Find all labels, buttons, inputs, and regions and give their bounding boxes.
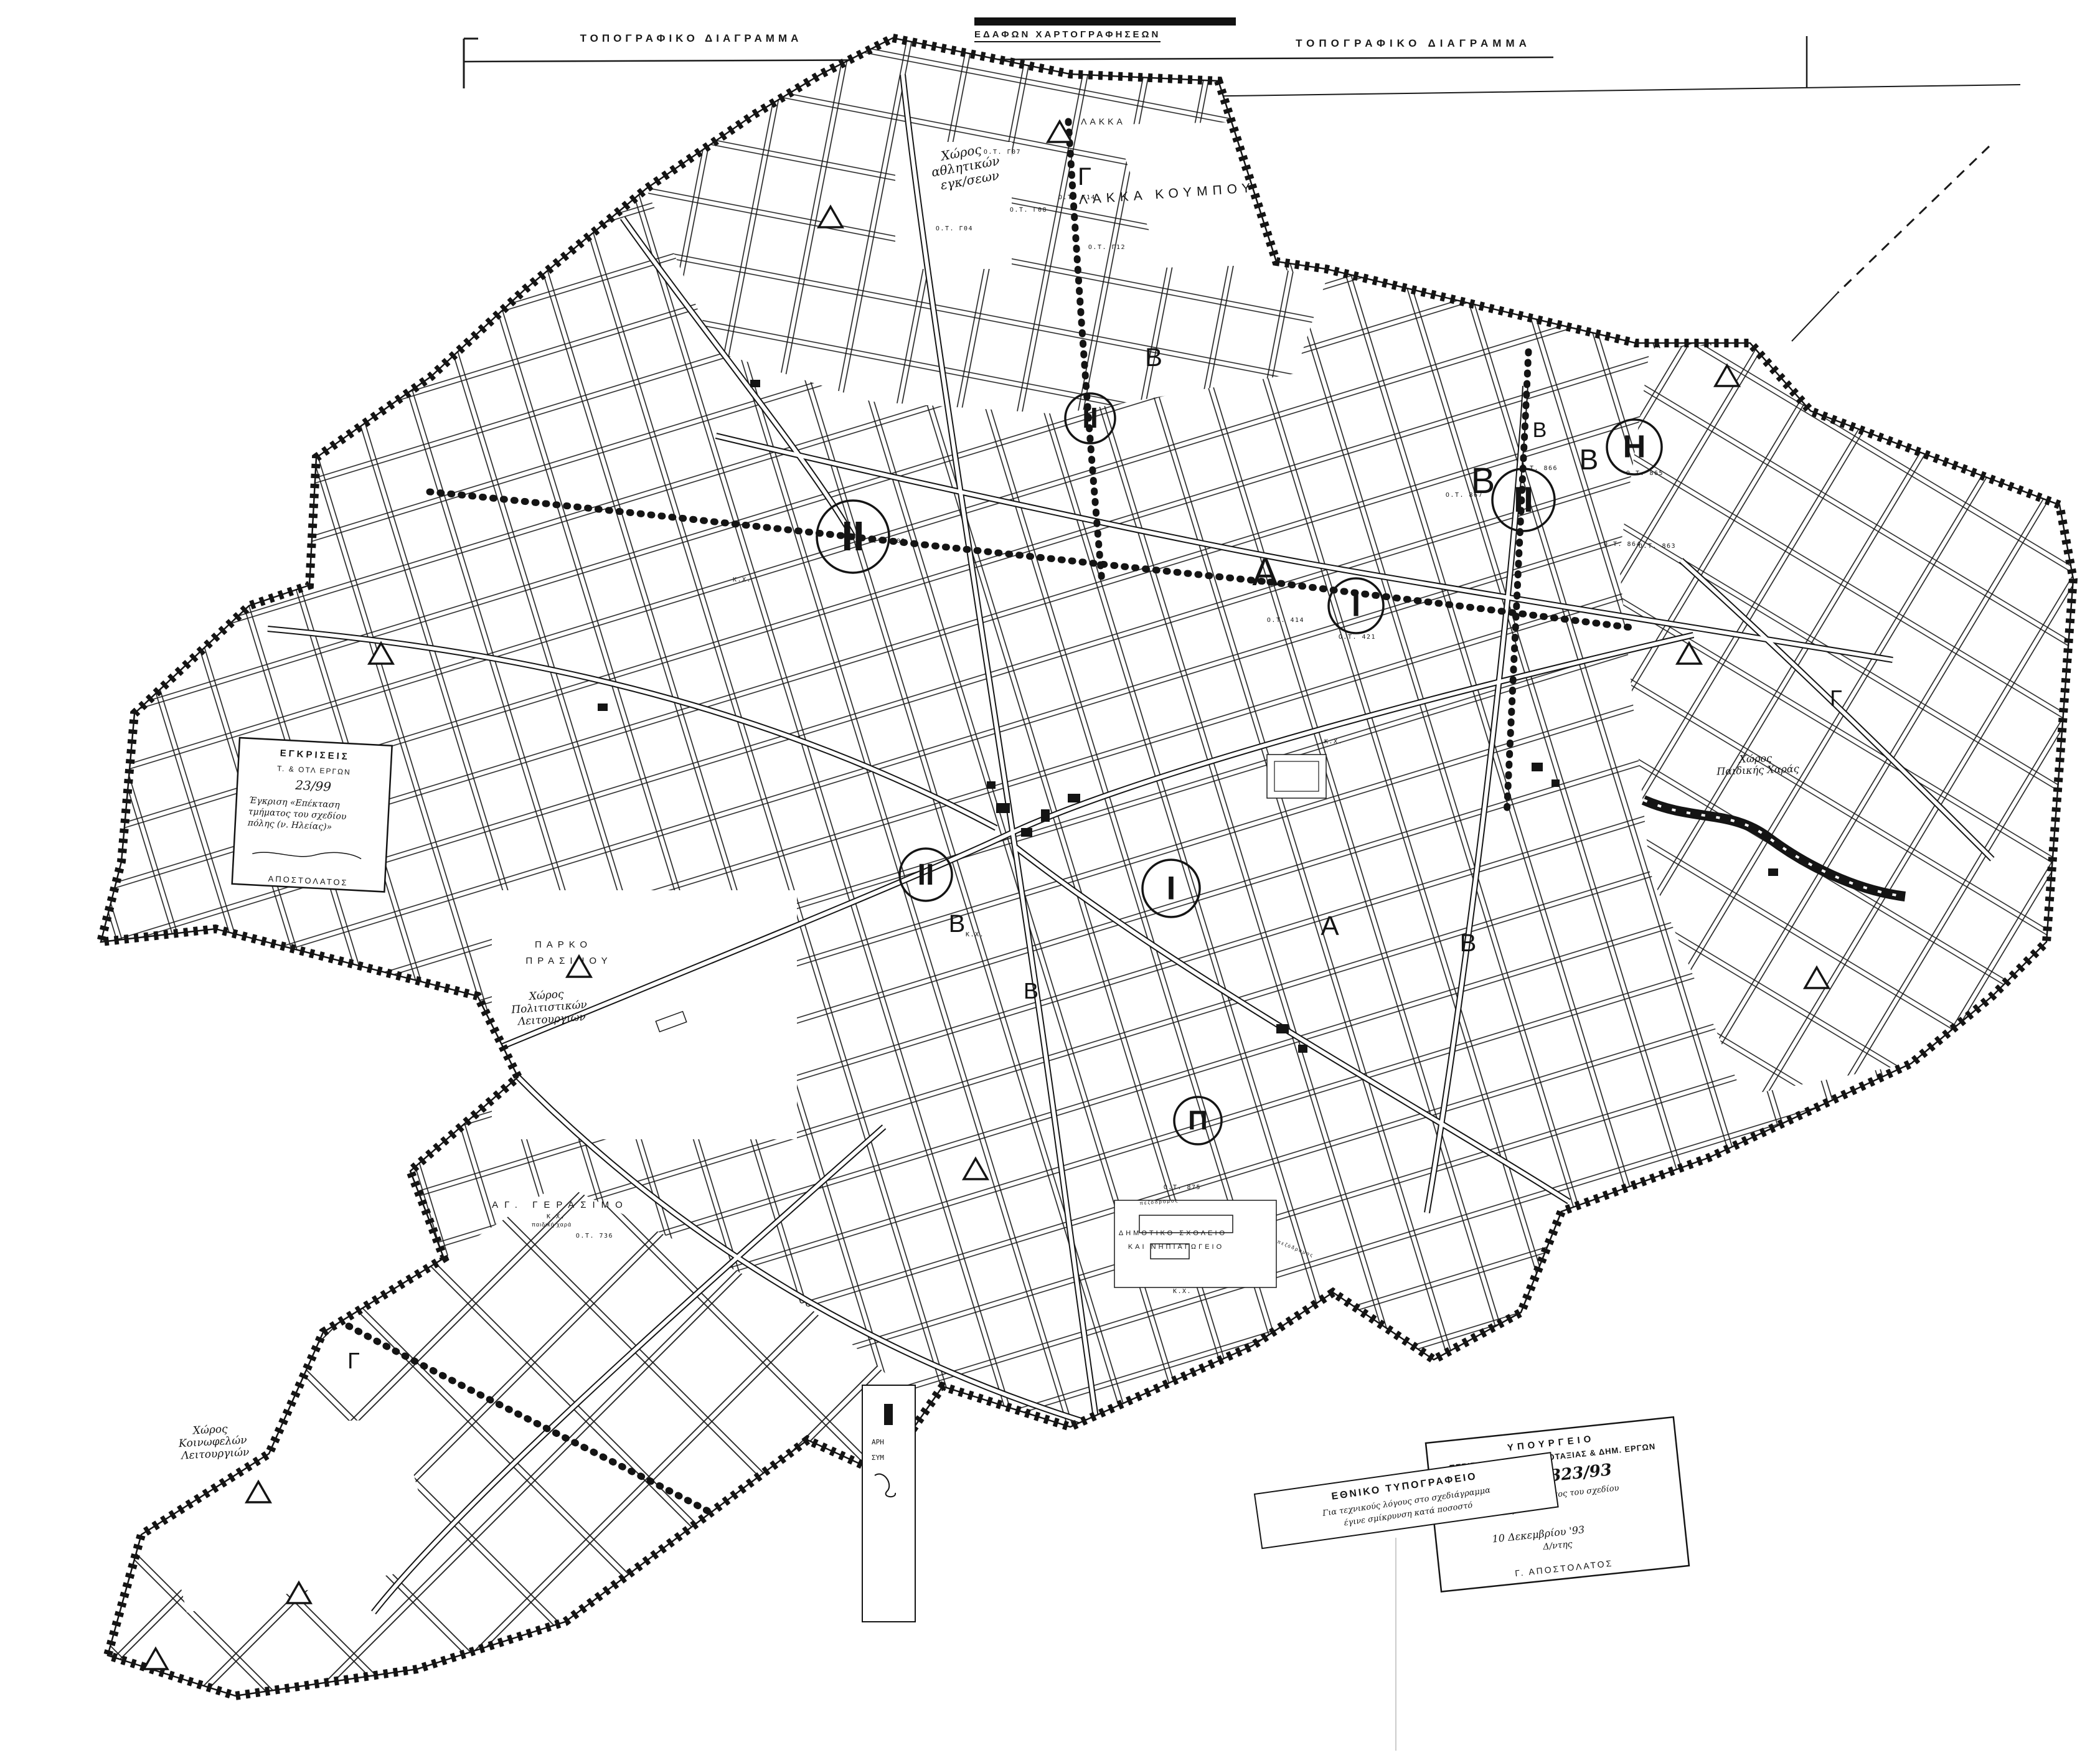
area-label: ΠΡΑΣΙΝΟΥ <box>525 956 612 966</box>
sheet-title-right: ΤΟΠΟΓΡΑΦΙΚΟ ΔΙΑΓΡΑΜΜΑ <box>1283 37 1544 50</box>
block-label: Ο.Τ. Γ07 <box>984 149 1021 156</box>
zone-letter: Β <box>1145 342 1162 372</box>
block-label: Ο.Τ. 863 <box>1639 543 1676 550</box>
street-network <box>101 38 2073 1696</box>
zone-letter: Γ <box>347 1348 360 1373</box>
block-label: Κ.Χ. <box>1324 738 1343 745</box>
block-label: Ο.Τ. 421 <box>1339 634 1376 641</box>
zone-letter: Β <box>1460 929 1477 957</box>
zone-letter: Α <box>1321 911 1339 941</box>
area-label: ΠΑΡΚΟ <box>535 939 592 950</box>
redacted-title-bar <box>974 17 1236 26</box>
block-label: Ο.Τ. 875 <box>1164 1184 1201 1191</box>
zone-letter: Γ <box>1830 685 1842 711</box>
zone-letter: Α <box>1252 551 1278 594</box>
city-plan-map: ΛΑΚΚΑ ΚΟΥΜΠΟΥΛΑΚΚΑΠΑΡΚΟΠΡΑΣΙΝΟΥΑΓ. ΓΕΡΑΣ… <box>0 0 2100 1755</box>
sheet-title-center-text: ΕΔΑΦΩΝ ΧΑΡΤΟΓΡΑΦΗΣΕΩΝ <box>974 29 1161 42</box>
scanned-map-page: ΛΑΚΚΑ ΚΟΥΜΠΟΥΛΑΚΚΑΠΑΡΚΟΠΡΑΣΙΝΟΥΑΓ. ΓΕΡΑΣ… <box>0 0 2100 1755</box>
svg-text:ΙΙ: ΙΙ <box>1082 402 1098 434</box>
sheet-title-center: ΕΔΑΦΩΝ ΧΑΡΤΟΓΡΑΦΗΣΕΩΝ <box>974 17 1261 42</box>
svg-text:Π: Π <box>1188 1105 1208 1136</box>
area-label: ΚΑΙ ΝΗΠΙΑΓΩΓΕΙΟ <box>1128 1243 1224 1251</box>
legend-text: ΑΡΗ <box>872 1438 884 1446</box>
block-label: Κ.Χ. <box>547 1213 565 1220</box>
block-label: Ο.Τ. 736 <box>576 1233 613 1240</box>
svg-text:Ι: Ι <box>1352 588 1360 623</box>
svg-text:Η: Η <box>1623 429 1646 464</box>
zone-letter: Β <box>1533 418 1547 442</box>
block-label: Ο.Τ. 864 <box>1604 541 1641 548</box>
area-label: ΑΓ. ΓΕΡΑΣΙΜΟ <box>492 1200 629 1210</box>
block-label: Ο.Τ. Γ14 <box>1058 194 1096 201</box>
zone-letter: Γ <box>1078 163 1091 191</box>
legend-text: ΣΥΜ <box>872 1454 884 1462</box>
block-label: Ο.Τ. 414 <box>1267 617 1304 624</box>
sheet-title-left: ΤΟΠΟΓΡΑΦΙΚΟ ΔΙΑΓΡΑΜΜΑ <box>560 32 822 45</box>
handwritten-label: ΧώροςΚοινωφελώνΛειτουργιών <box>177 1422 249 1462</box>
area-label: ΛΑΚΚΑ <box>1081 116 1126 126</box>
block-label: Ο.Τ. Γ08 <box>1010 207 1047 214</box>
zone-letter: Β <box>949 910 966 938</box>
block-label: Ο.Τ. 867 <box>1446 492 1483 499</box>
svg-text:ΙΙ: ΙΙ <box>841 514 864 560</box>
stamp-line: 23/99 <box>294 778 332 794</box>
svg-text:ΙΙ: ΙΙ <box>918 858 935 892</box>
legend-strip: ΑΡΗ ΣΥΜ <box>862 1385 915 1622</box>
block-label: Ο.Τ. Γ12 <box>1088 244 1126 251</box>
svg-text:Ι: Ι <box>1167 870 1176 906</box>
zone-letter: Β <box>1580 443 1599 476</box>
block-label: Κ.Χ. <box>1173 1288 1192 1295</box>
area-label: παιδική χαρά <box>532 1221 572 1228</box>
block-label: Κ.Χ. <box>733 576 751 583</box>
block-label: Ο.Τ. 403 <box>869 538 906 545</box>
block-label: Ο.Τ. 865 <box>1626 470 1664 477</box>
block-label: Ο.Τ. 866 <box>1520 465 1558 472</box>
block-label: Ο.Τ. Γ04 <box>936 225 973 232</box>
approval-stamp-left: ΕΓΚΡΙΣΕΙΣ Τ. & ΟΤΛ ΕΡΓΩΝ 23/99 Έγκριση «… <box>232 738 392 892</box>
block-label: Κ.Χ. <box>966 931 984 938</box>
zone-letter: Β <box>1024 978 1038 1004</box>
area-label: ΔΗΜΟΤΙΚΟ ΣΧΟΛΕΙΟ <box>1119 1230 1227 1237</box>
svg-text:ΙΙ: ΙΙ <box>1514 480 1533 520</box>
